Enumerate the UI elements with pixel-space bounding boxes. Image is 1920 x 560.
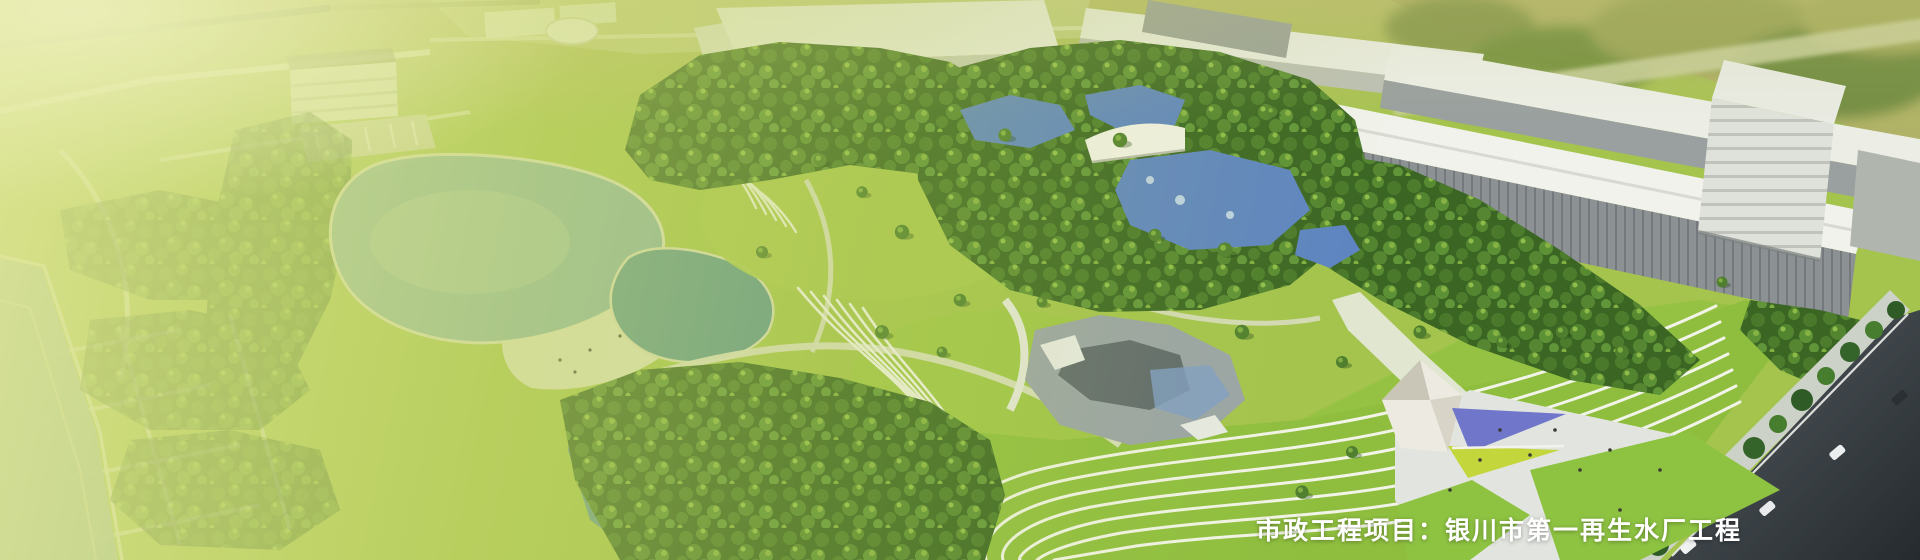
aerial-rendering: [0, 0, 1920, 560]
hero-banner: 市政工程项目：银川市第一再生水厂工程: [0, 0, 1920, 560]
greenhouse-dome: [546, 18, 598, 44]
project-caption: 市政工程项目：银川市第一再生水厂工程: [1256, 511, 1742, 547]
